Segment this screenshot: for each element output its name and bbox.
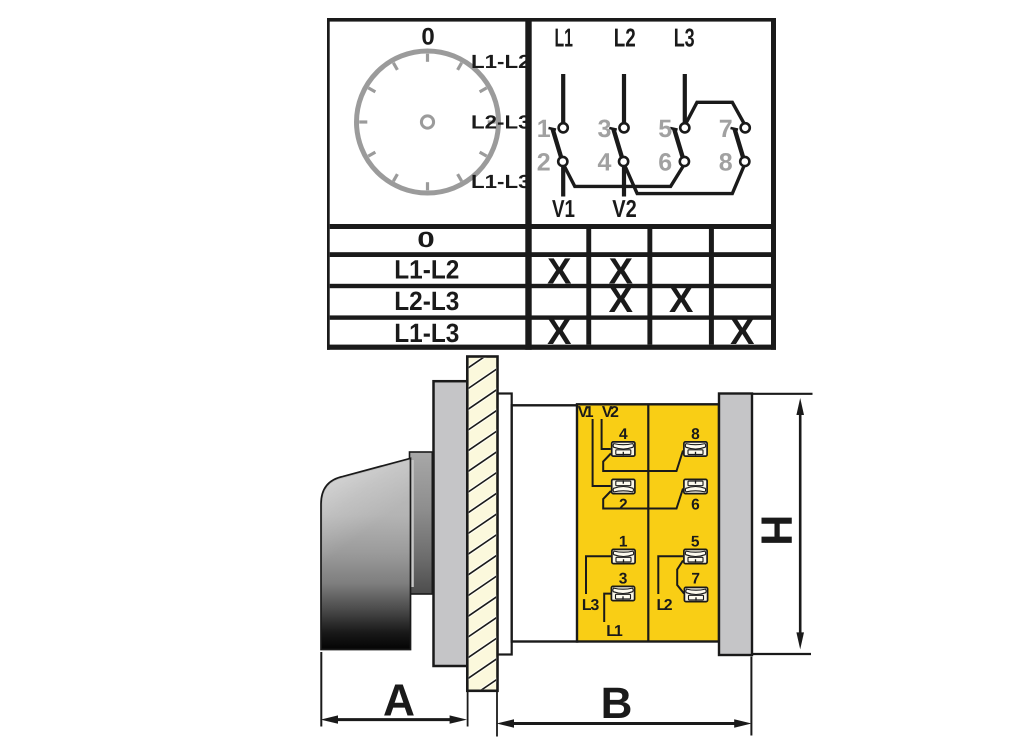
svg-text:L3: L3 <box>674 23 695 53</box>
svg-text:L2-L3: L2-L3 <box>471 113 531 134</box>
svg-text:3: 3 <box>597 115 611 143</box>
svg-text:7: 7 <box>691 571 700 588</box>
svg-text:4: 4 <box>619 426 628 443</box>
svg-text:L2-L3: L2-L3 <box>394 286 459 316</box>
svg-text:V2: V2 <box>602 404 619 421</box>
svg-text:L3: L3 <box>582 597 600 614</box>
svg-text:L1: L1 <box>606 623 623 640</box>
svg-text:A: A <box>383 675 415 726</box>
svg-text:X: X <box>669 279 694 320</box>
svg-text:X: X <box>547 250 572 291</box>
svg-text:1: 1 <box>619 534 628 551</box>
svg-text:1: 1 <box>537 115 551 143</box>
svg-text:0: 0 <box>421 24 434 51</box>
svg-text:0: 0 <box>417 227 435 252</box>
svg-text:L1-L2: L1-L2 <box>394 255 459 285</box>
svg-text:V1: V1 <box>578 404 594 421</box>
svg-text:H: H <box>752 515 801 546</box>
svg-text:6: 6 <box>658 149 672 177</box>
svg-text:X: X <box>547 311 572 352</box>
svg-text:X: X <box>730 311 755 352</box>
svg-text:L2: L2 <box>657 597 673 614</box>
svg-text:X: X <box>609 279 634 320</box>
svg-text:6: 6 <box>691 497 700 514</box>
svg-text:7: 7 <box>719 115 733 143</box>
svg-text:2: 2 <box>619 497 628 514</box>
svg-text:4: 4 <box>597 149 611 177</box>
svg-text:8: 8 <box>719 149 733 177</box>
svg-text:L1-L2: L1-L2 <box>471 52 531 73</box>
svg-text:L1-L3: L1-L3 <box>394 318 459 348</box>
svg-text:5: 5 <box>691 534 700 551</box>
svg-text:8: 8 <box>691 426 700 443</box>
svg-text:V1: V1 <box>552 196 575 223</box>
svg-text:L2: L2 <box>614 23 636 53</box>
svg-text:5: 5 <box>658 115 672 143</box>
svg-text:V2: V2 <box>612 196 637 223</box>
svg-text:2: 2 <box>537 149 551 177</box>
svg-text:L1-L3: L1-L3 <box>471 172 531 193</box>
svg-text:3: 3 <box>619 571 628 588</box>
svg-text:L1: L1 <box>554 23 573 53</box>
svg-text:B: B <box>601 679 633 728</box>
